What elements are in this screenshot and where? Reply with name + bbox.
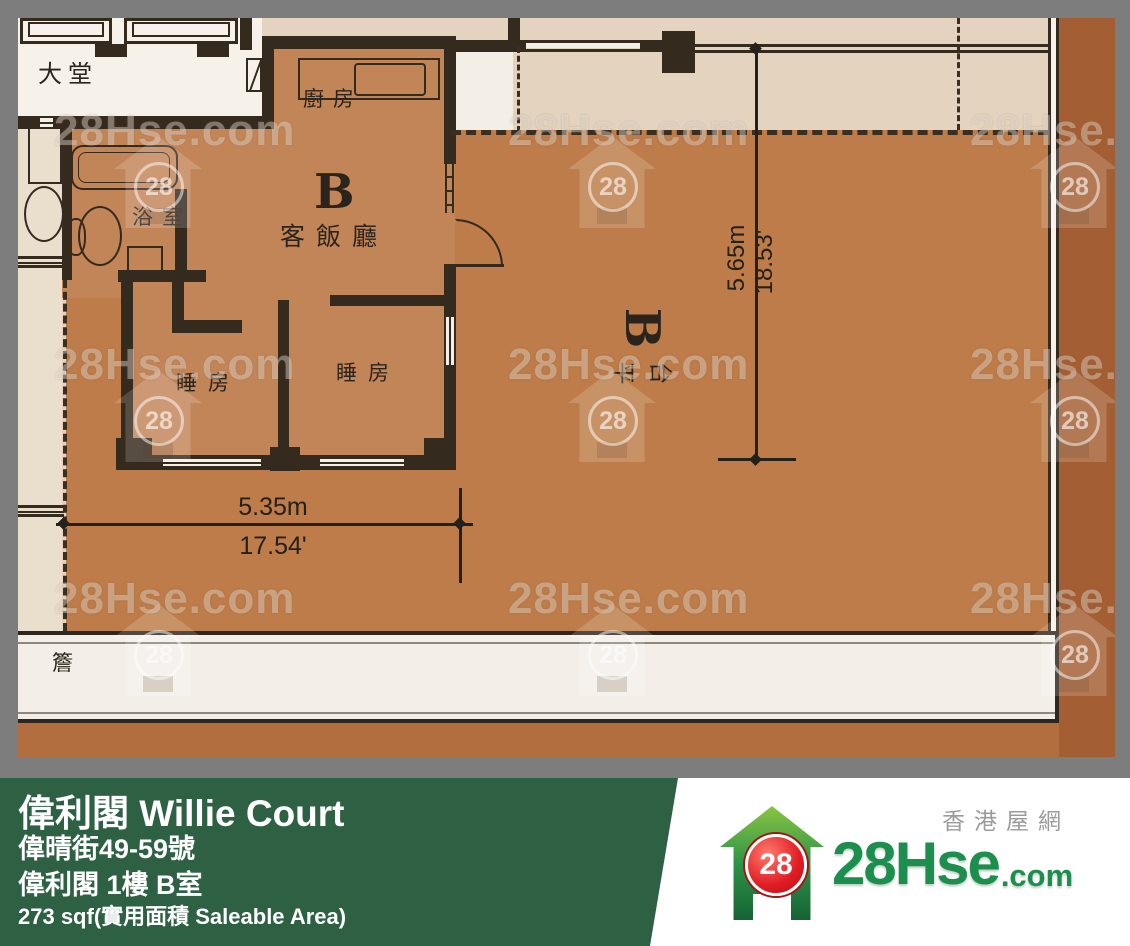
depth-feet-label: 18.53' — [751, 222, 779, 302]
left-boundary-dashed — [63, 280, 67, 631]
below-eave-strip — [18, 723, 1059, 757]
plan-w — [172, 320, 242, 333]
terrace-label: 平 台 — [614, 356, 674, 390]
adjacent-fixture — [28, 122, 62, 184]
28hse-brand-text: 28Hse .com — [832, 834, 1073, 894]
plan-w — [508, 18, 520, 42]
plan-w — [95, 44, 127, 57]
adjacent-window — [18, 505, 64, 517]
plan-dashv — [957, 18, 960, 130]
bedroom2-top-wall — [330, 295, 456, 306]
lobby-window-inner — [132, 22, 230, 37]
bedroom-left-label: 睡房 — [176, 372, 240, 395]
plan-element: 台 — [646, 362, 680, 385]
terrace-left-area — [66, 298, 121, 631]
eave-band — [18, 631, 1059, 723]
terrace-area — [455, 130, 1048, 631]
plan-thin — [695, 44, 1048, 47]
width-feet-label: 17.54' — [203, 532, 343, 561]
floor-plan: 大堂 廚房 B 客飯廳 浴室 睡房 睡房 B 平 台 簷 5.35m 17.54… — [18, 18, 1115, 757]
kitchen-top-wall — [262, 36, 456, 49]
unit-label: B — [314, 166, 355, 219]
terrace-boundary-dashed — [451, 130, 1048, 135]
logo-door — [753, 894, 791, 920]
unit-info: 偉利閣 1樓 B室 — [18, 863, 203, 902]
plan-winm — [526, 49, 640, 52]
plan-w — [640, 40, 662, 52]
plan-thin — [445, 176, 454, 178]
plan-thin — [247, 58, 262, 92]
plan-thin — [695, 50, 1048, 53]
28hse-logo-badge: 28 — [745, 834, 807, 896]
eave-label: 簷 — [52, 652, 73, 675]
corridor-area — [456, 47, 513, 132]
adjacent-fixture — [24, 186, 64, 242]
lobby-window-inner — [28, 22, 104, 37]
bedroom-divider-wall — [278, 300, 289, 456]
lobby-label: 大堂 — [38, 62, 98, 88]
plan-winm — [449, 317, 451, 365]
plan-w — [240, 18, 252, 50]
terrace-unit-label: B — [616, 302, 668, 354]
kitchen-label: 廚房 — [303, 88, 363, 111]
sink — [127, 246, 163, 276]
depth-meters-label: 5.65m — [723, 218, 751, 298]
listing-info-banner: 偉利閣 Willie Court 偉晴街49-59號 偉利閣 1樓 B室 273… — [0, 778, 1130, 946]
brand-chinese-name: 香港屋網 — [942, 802, 1070, 836]
lobby-right-wall — [262, 36, 274, 129]
plan-winm — [320, 462, 404, 464]
dimension-line-horizontal — [56, 523, 473, 526]
plan-winm — [526, 40, 640, 43]
plan-thin — [445, 190, 454, 192]
entry-door — [246, 58, 262, 92]
plan-ol — [78, 152, 170, 183]
plan-w — [197, 44, 229, 57]
brand-suffix: .com — [1001, 860, 1073, 891]
unit-left-wall — [62, 116, 72, 280]
eave-inner-line-bottom — [18, 712, 1055, 714]
plan-element: 平 — [609, 362, 643, 385]
plan-winw — [526, 43, 640, 48]
plan-dashv — [517, 47, 520, 132]
right-rust-strip — [1059, 18, 1115, 757]
bedroom-right-label: 睡房 — [336, 362, 400, 385]
building-address: 偉晴街49-59號 — [18, 827, 195, 866]
living-dining-label: 客飯廳 — [280, 224, 388, 252]
plan-thin — [445, 204, 454, 206]
brand-main: 28Hse — [832, 834, 999, 894]
boundary-double-line — [1048, 18, 1059, 631]
width-meters-label: 5.35m — [203, 493, 343, 522]
eave-inner-line-top — [18, 642, 1055, 644]
kitchen-appliance — [354, 63, 426, 96]
kitchen-right-wall — [444, 36, 456, 164]
bathroom-label: 浴室 — [132, 206, 192, 229]
plan-w — [424, 438, 456, 470]
saleable-area: 273 sqf(實用面積 Saleable Area) — [18, 899, 346, 931]
bathroom-right-wall — [175, 189, 187, 270]
adjacent-window — [18, 256, 64, 268]
plan-winm — [163, 462, 261, 464]
plan-dline — [459, 488, 462, 583]
property-floorplan-page: 大堂 廚房 B 客飯廳 浴室 睡房 睡房 B 平 台 簷 5.35m 17.54… — [0, 0, 1130, 946]
bedroom-left-wall — [121, 280, 133, 455]
structural-column — [662, 31, 695, 73]
